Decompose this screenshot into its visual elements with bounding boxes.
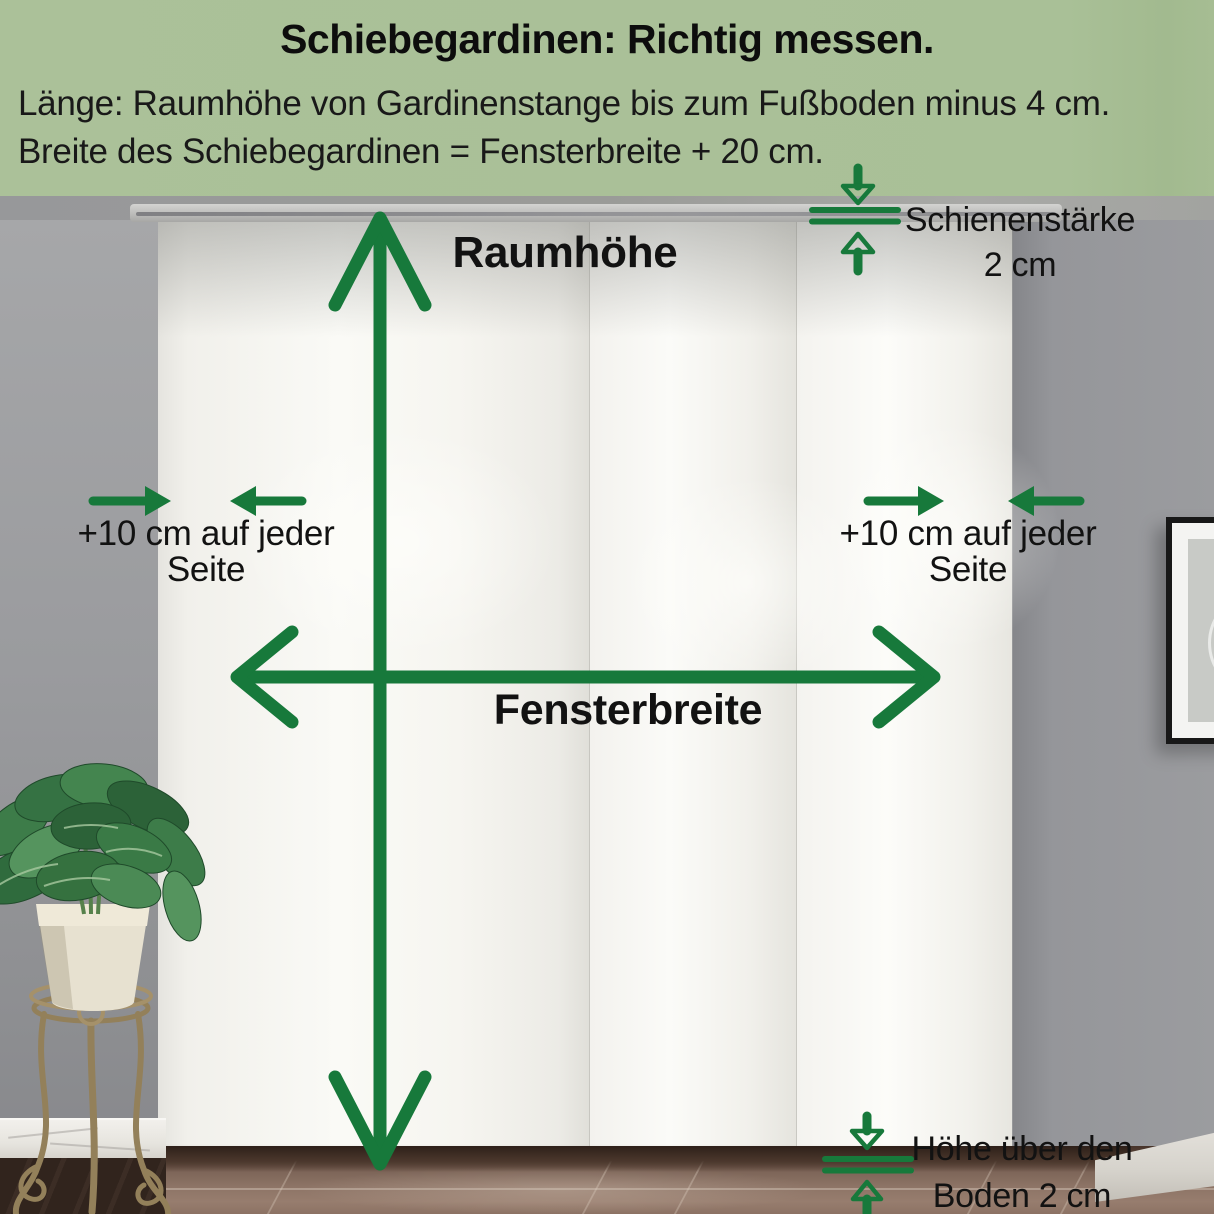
framed-artwork: [1188, 539, 1214, 722]
rail-thickness-label-line2: 2 cm: [984, 246, 1056, 284]
floor-gap-label-line2: Boden 2 cm: [933, 1177, 1111, 1214]
floor-reflection: [300, 1166, 820, 1214]
plant-pot: [36, 904, 150, 1011]
right-offset-label-line2: Seite: [929, 550, 1007, 589]
floor-gap-label-line1: Höhe über den: [911, 1130, 1132, 1168]
measuring-guide-image: Schiebegardinen: Richtig messen. Länge: …: [0, 0, 1214, 1214]
rail-thickness-label: Schienenstärke 2 cm: [896, 198, 1144, 288]
right-offset-label: +10 cm auf jeder Seite: [820, 516, 1116, 587]
artwork-circle-motif: [1208, 597, 1214, 689]
floor-gap-label: Höhe über den Boden 2 cm: [898, 1126, 1146, 1214]
rail-thickness-label-line1: Schienenstärke: [905, 201, 1135, 239]
left-offset-label: +10 cm auf jeder Seite: [58, 516, 354, 587]
left-offset-label-line1: +10 cm auf jeder: [78, 514, 335, 553]
left-offset-label-line2: Seite: [167, 550, 245, 589]
picture-frame: [1166, 517, 1214, 744]
room-height-label: Raumhöhe: [420, 230, 710, 277]
curtain-panel: [797, 222, 1012, 1156]
potted-plant: [0, 756, 221, 1214]
right-offset-label-line1: +10 cm auf jeder: [840, 514, 1097, 553]
instruction-line-1: Länge: Raumhöhe von Gardinenstange bis z…: [18, 84, 1198, 124]
plant-stand: [16, 983, 168, 1214]
window-width-label: Fensterbreite: [468, 688, 788, 734]
page-title: Schiebegardinen: Richtig messen.: [0, 16, 1214, 63]
header: Schiebegardinen: Richtig messen. Länge: …: [0, 0, 1214, 196]
instruction-line-2: Breite des Schiebegardinen = Fensterbrei…: [18, 132, 1198, 172]
